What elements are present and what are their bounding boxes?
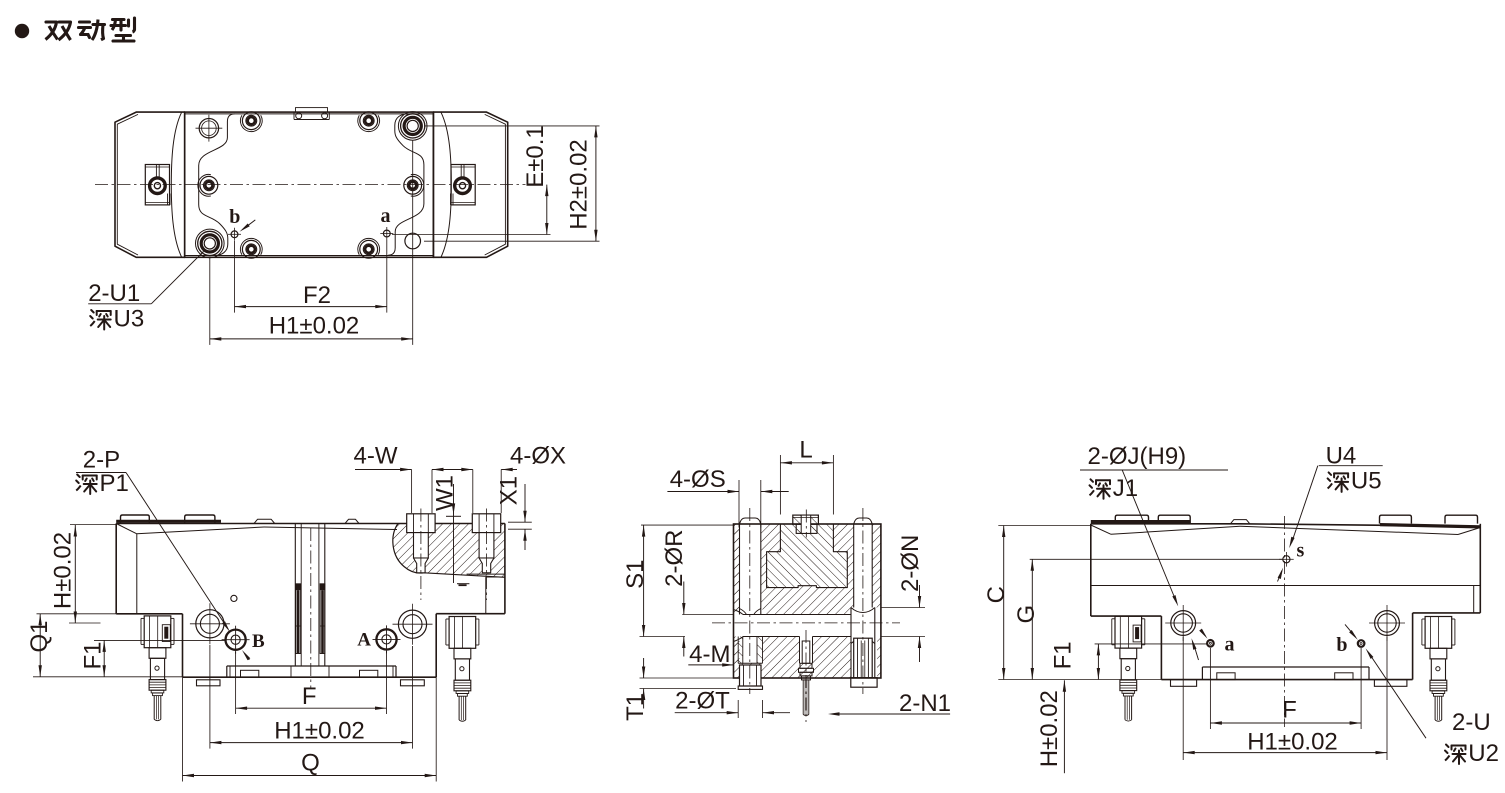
svg-text:E±0.1: E±0.1 — [522, 125, 549, 188]
svg-text:b: b — [229, 206, 240, 228]
svg-text:T1: T1 — [622, 693, 649, 721]
svg-text:B: B — [252, 631, 265, 652]
svg-text:H±0.02: H±0.02 — [1036, 690, 1063, 767]
svg-text:L: L — [799, 436, 812, 463]
svg-text:F2: F2 — [303, 282, 331, 309]
svg-text:b: b — [1336, 634, 1347, 656]
svg-text:H±0.02: H±0.02 — [50, 532, 77, 609]
svg-text:U3: U3 — [114, 305, 145, 332]
svg-text:H1±0.02: H1±0.02 — [269, 312, 360, 339]
svg-text:F: F — [1282, 697, 1297, 724]
svg-text:2-ØT: 2-ØT — [675, 687, 730, 714]
svg-text:S1: S1 — [622, 560, 649, 589]
svg-text:2-ØN: 2-ØN — [897, 535, 924, 592]
svg-text:H1±0.02: H1±0.02 — [1247, 729, 1338, 756]
svg-text:2-U: 2-U — [1452, 709, 1491, 736]
svg-text:X1: X1 — [495, 476, 522, 505]
svg-text:H1±0.02: H1±0.02 — [274, 717, 365, 744]
svg-text:4-W: 4-W — [354, 443, 398, 470]
svg-text:F1: F1 — [1050, 641, 1077, 669]
svg-text:U2: U2 — [1468, 740, 1499, 767]
svg-text:H2±0.02: H2±0.02 — [566, 139, 593, 230]
svg-text:a: a — [1225, 634, 1235, 656]
svg-text:A: A — [357, 630, 371, 651]
svg-text:s: s — [1297, 540, 1305, 562]
svg-text:Q1: Q1 — [26, 620, 53, 652]
svg-text:C: C — [983, 586, 1010, 603]
svg-text:F1: F1 — [80, 641, 107, 669]
svg-text:Q: Q — [301, 749, 320, 776]
svg-text:U5: U5 — [1351, 468, 1382, 495]
svg-text:4-ØS: 4-ØS — [670, 466, 726, 493]
svg-text:2-U1: 2-U1 — [88, 280, 140, 307]
svg-text:2-ØJ(H9): 2-ØJ(H9) — [1088, 443, 1187, 470]
svg-text:G: G — [1013, 605, 1040, 624]
svg-text:a: a — [381, 205, 391, 227]
svg-text:F: F — [302, 683, 317, 710]
svg-text:2-ØR: 2-ØR — [661, 530, 688, 587]
svg-text:2-N1: 2-N1 — [899, 690, 951, 717]
svg-text:P1: P1 — [100, 470, 129, 497]
svg-text:4-ØX: 4-ØX — [510, 443, 566, 470]
